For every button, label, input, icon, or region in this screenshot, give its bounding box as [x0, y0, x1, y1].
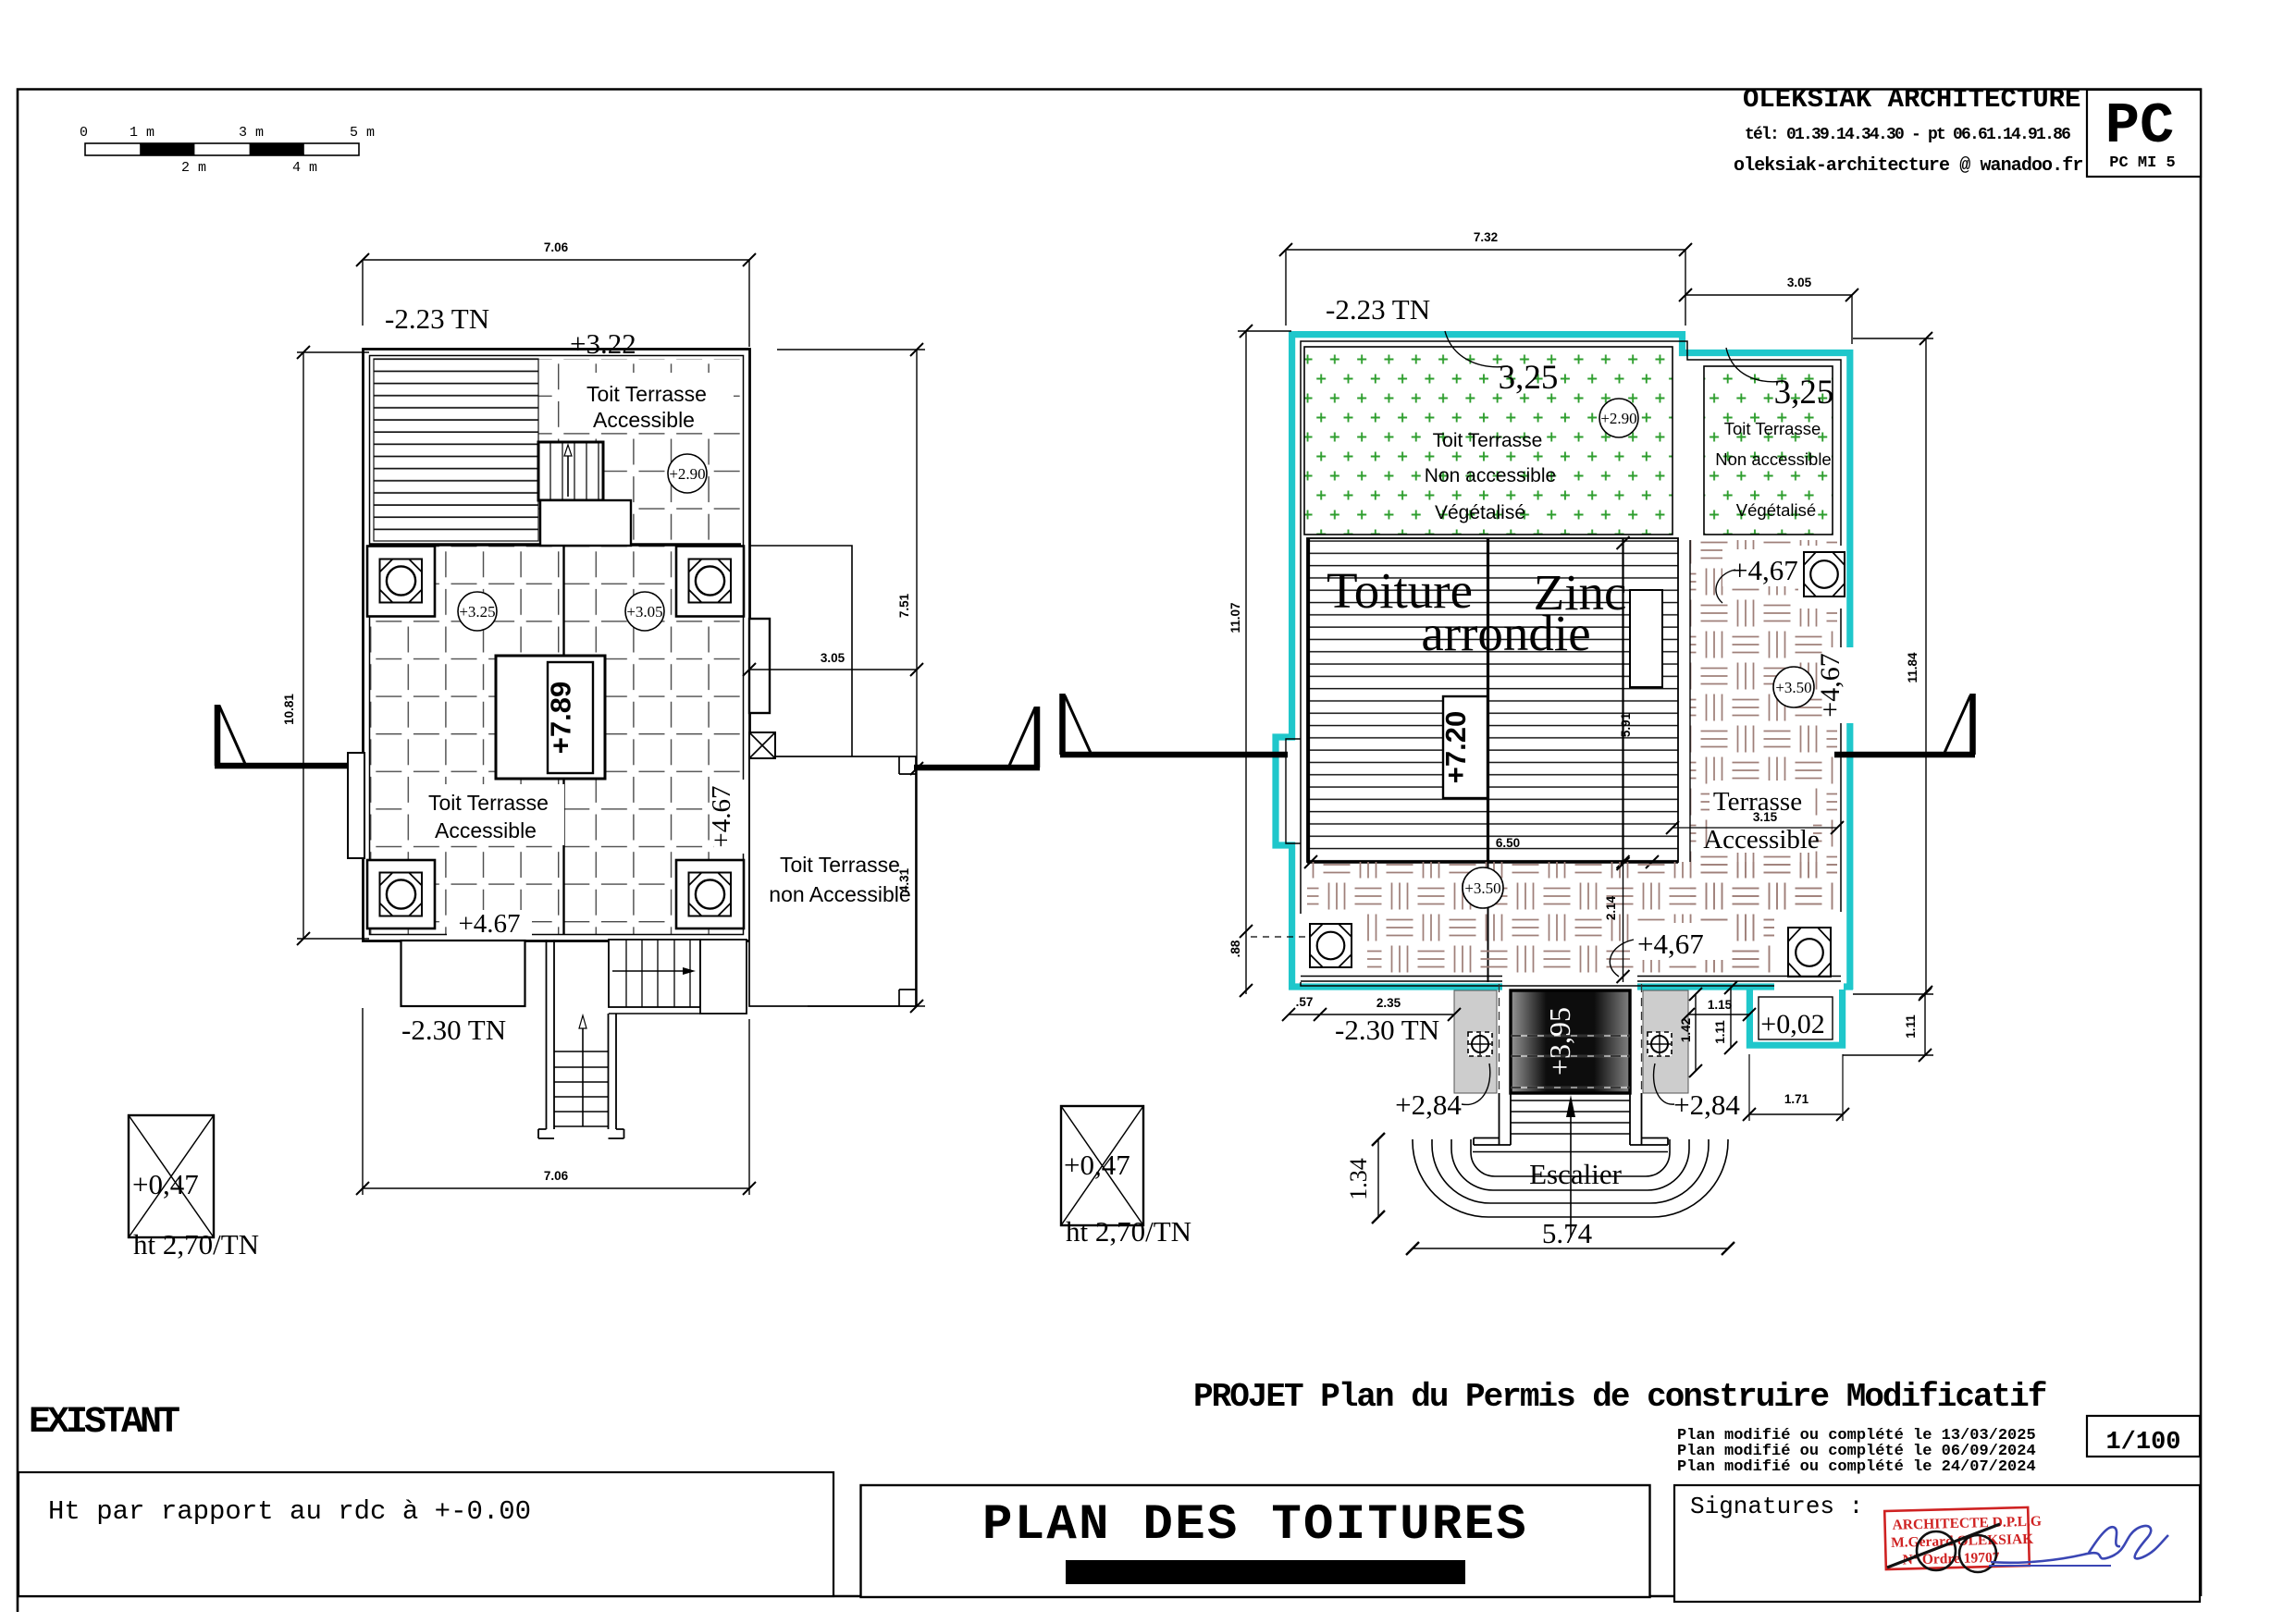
svg-text:PC: PC [2105, 93, 2174, 159]
svg-text:tél: 01.39.14.34.30 - pt 06.61: tél: 01.39.14.34.30 - pt 06.61.14.91.86 [1745, 126, 2070, 144]
svg-text:2.14: 2.14 [1604, 895, 1618, 920]
svg-text:1.71: 1.71 [1784, 1092, 1809, 1106]
svg-text:Toit Terrasse: Toit Terrasse [428, 791, 549, 815]
svg-text:Végétalisé: Végétalisé [1435, 502, 1525, 523]
svg-text:7.51: 7.51 [897, 593, 911, 618]
svg-text:5 m: 5 m [350, 125, 375, 141]
svg-text:Végétalisé: Végétalisé [1736, 500, 1816, 520]
svg-text:Toit Terrasse: Toit Terrasse [780, 853, 900, 877]
svg-text:4.31: 4.31 [897, 867, 911, 892]
svg-text:Escalier: Escalier [1529, 1158, 1623, 1190]
svg-text:10.81: 10.81 [282, 694, 296, 725]
svg-text:11.84: 11.84 [1906, 652, 1920, 683]
svg-text:3.05: 3.05 [821, 651, 846, 665]
svg-text:Non accessible: Non accessible [1425, 465, 1556, 486]
svg-text:Ht par rapport au rdc à +-0.00: Ht par rapport au rdc à +-0.00 [48, 1496, 531, 1527]
svg-text:+7.20: +7.20 [1439, 711, 1472, 783]
svg-text:arrondie: arrondie [1421, 605, 1590, 661]
svg-text:5.91: 5.91 [1619, 712, 1633, 737]
svg-text:+4,67: +4,67 [1732, 554, 1798, 586]
svg-text:-2.30 TN: -2.30 TN [1335, 1014, 1439, 1046]
svg-text:1.15: 1.15 [1708, 998, 1733, 1012]
svg-text:OLEKSIAK ARCHITECTURE: OLEKSIAK ARCHITECTURE [1743, 84, 2080, 115]
svg-text:+4.67: +4.67 [707, 785, 736, 847]
svg-text:+2.90: +2.90 [669, 465, 705, 483]
svg-text:+3.22: +3.22 [570, 327, 636, 360]
svg-text:1 m: 1 m [130, 125, 154, 141]
svg-text:+2,84: +2,84 [1395, 1088, 1462, 1121]
svg-text:PC MI 5: PC MI 5 [2109, 154, 2175, 172]
svg-text:PROJET Plan du Permis de const: PROJET Plan du Permis de construire Modi… [1193, 1378, 2046, 1416]
svg-text:+0,47: +0,47 [132, 1168, 199, 1200]
svg-text:2 m: 2 m [181, 160, 206, 176]
svg-text:+4.67: +4.67 [458, 909, 520, 939]
svg-text:Plan modifié ou complété le 24: Plan modifié ou complété le 24/07/2024 [1677, 1458, 2036, 1476]
svg-text:7.06: 7.06 [544, 240, 569, 254]
svg-text:2.35: 2.35 [1376, 996, 1401, 1010]
svg-text:ht 2,70/TN: ht 2,70/TN [1066, 1215, 1191, 1248]
svg-text:PLAN DES TOITURES: PLAN DES TOITURES [982, 1497, 1528, 1554]
svg-text:+4,67: +4,67 [1637, 928, 1704, 960]
svg-text:3.15: 3.15 [1753, 810, 1778, 824]
svg-text:-2.23 TN: -2.23 TN [385, 302, 489, 335]
svg-text:ht 2,70/TN: ht 2,70/TN [133, 1228, 259, 1260]
svg-text:+3.50: +3.50 [1464, 879, 1500, 897]
svg-text:Toit Terrasse: Toit Terrasse [586, 382, 707, 406]
svg-text:5.74: 5.74 [1542, 1217, 1593, 1249]
svg-text:3 m: 3 m [239, 125, 264, 141]
svg-text:+2,84: +2,84 [1673, 1088, 1740, 1121]
svg-text:0: 0 [80, 125, 88, 141]
svg-text:.57: .57 [1296, 995, 1314, 1009]
svg-text:Non accessible: Non accessible [1715, 449, 1831, 469]
svg-text:+4,67: +4,67 [1815, 653, 1845, 717]
svg-text:7.06: 7.06 [544, 1169, 569, 1183]
svg-text:.88: .88 [1228, 940, 1242, 957]
svg-text:1.34: 1.34 [1345, 1158, 1372, 1200]
svg-text:3.05: 3.05 [1787, 276, 1812, 289]
svg-text:3,25: 3,25 [1499, 359, 1559, 397]
svg-text:Accessible: Accessible [1703, 825, 1820, 855]
svg-text:+0,02: +0,02 [1760, 1009, 1824, 1039]
svg-text:Accessible: Accessible [593, 408, 695, 432]
svg-text:1.11: 1.11 [1713, 1020, 1727, 1044]
svg-text:-2.23 TN: -2.23 TN [1326, 293, 1430, 326]
svg-text:+7.89: +7.89 [545, 682, 577, 754]
svg-text:+2.90: +2.90 [1600, 410, 1636, 427]
svg-text:+3.25: +3.25 [459, 603, 495, 621]
svg-text:+3.50: +3.50 [1775, 679, 1811, 696]
svg-text:1.42: 1.42 [1679, 1018, 1693, 1042]
svg-text:EXISTANT: EXISTANT [29, 1402, 179, 1444]
svg-text:7.32: 7.32 [1474, 230, 1498, 244]
svg-text:+3,95: +3,95 [1543, 1007, 1576, 1076]
svg-text:Toit Terrasse: Toit Terrasse [1724, 419, 1821, 438]
svg-text:non Accessible: non Accessible [769, 882, 910, 906]
svg-text:oleksiak-architecture @ wanado: oleksiak-architecture @ wanadoo.fr [1734, 155, 2082, 177]
svg-text:+3.05: +3.05 [626, 603, 662, 621]
svg-text:Accessible: Accessible [435, 818, 537, 842]
svg-text:4 m: 4 m [292, 160, 317, 176]
svg-text:Signatures :: Signatures : [1690, 1493, 1863, 1520]
svg-text:Toit Terrasse: Toit Terrasse [1433, 430, 1543, 451]
svg-text:11.07: 11.07 [1228, 602, 1242, 633]
svg-text:+0,47: +0,47 [1064, 1149, 1130, 1181]
svg-text:6.50: 6.50 [1496, 836, 1520, 850]
svg-text:1.11: 1.11 [1904, 1014, 1918, 1039]
svg-text:3,25: 3,25 [1774, 374, 1834, 412]
svg-text:-2.30 TN: -2.30 TN [401, 1014, 506, 1046]
svg-text:1/100: 1/100 [2105, 1429, 2180, 1457]
